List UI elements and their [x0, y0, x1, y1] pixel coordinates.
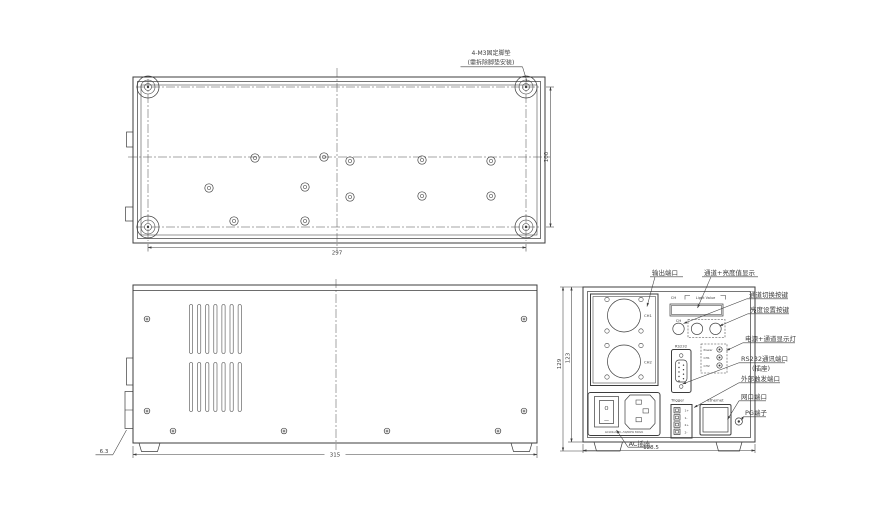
led-ch1-label: CH1	[704, 356, 710, 360]
led-power-label: Power	[704, 348, 714, 352]
centerlines	[128, 68, 550, 251]
dim-side-width: 315	[133, 446, 537, 459]
callout-power-channel-leds: 电源+通道显示灯	[727, 334, 797, 351]
engineering-drawing: 297 100 4-M3固定脚垫 (需拆除脚垫安装)	[0, 0, 888, 522]
side-view: 6.3 315	[96, 279, 538, 459]
callout-pg-terminal: PG端子	[742, 408, 768, 421]
db9-pins	[678, 362, 684, 381]
dim-6-3: 6.3	[100, 449, 109, 455]
switch-off-symbol: O	[605, 406, 609, 412]
dim-297: 297	[332, 251, 343, 257]
trigger-terminal-block: Trigger 1+ 1- 2+ 2-	[670, 398, 692, 439]
output-ch2-label: CH2	[644, 360, 653, 365]
status-leds	[717, 347, 722, 368]
svg-text:输出端口: 输出端口	[652, 268, 678, 277]
svg-text:RS232通讯端口: RS232通讯端口	[741, 354, 788, 363]
dim-100: 100	[544, 151, 550, 162]
display-value-label: Light Value	[696, 296, 715, 300]
brightness-down-knob	[710, 323, 721, 334]
output-ch1-label: CH1	[644, 313, 653, 318]
dim-123: 123	[566, 352, 572, 363]
svg-text:通道+亮度值显示: 通道+亮度值显示	[704, 268, 755, 277]
output-panel-screw-holes	[605, 297, 643, 379]
callout-channel-display: 通道+亮度值显示	[698, 268, 759, 308]
dim-tab: 6.3	[96, 430, 127, 455]
svg-text:AC插座: AC插座	[629, 439, 651, 448]
rear-panel-view: CH1 CH2 CH Light Value CH RS232	[557, 287, 755, 453]
power-switch: O —	[595, 397, 619, 428]
display-ch-label: CH	[671, 295, 677, 300]
pg-terminal-screw	[735, 418, 742, 425]
device-feet	[139, 443, 532, 452]
trigger-pin-2n: 2-	[685, 430, 688, 434]
side-screws	[144, 316, 527, 434]
display-window	[670, 304, 723, 316]
svg-text:电源+通道显示灯: 电源+通道显示灯	[745, 334, 796, 343]
dim-315: 315	[330, 453, 341, 459]
side-mounting-tabs	[126, 132, 134, 221]
rs232-label: RS232	[675, 344, 688, 349]
ethernet-port: Ethernet	[700, 398, 731, 436]
dim-rear-width: 128.5	[583, 444, 755, 453]
control-buttons: CH	[673, 318, 725, 338]
iec-inlet	[625, 395, 655, 429]
foot-pad-note-line2: (需拆除脚垫安装)	[468, 59, 515, 67]
top-view: 297 100 4-M3固定脚垫 (需拆除脚垫安装)	[126, 49, 555, 257]
dim-129: 129	[557, 358, 563, 369]
ac-rating-text: AC100-240V~50/60Hz 300VA	[605, 430, 643, 434]
drawing-canvas: 297 100 4-M3固定脚垫 (需拆除脚垫安装)	[0, 0, 888, 522]
side-left-tabs	[125, 358, 133, 429]
brightness-up-knob	[691, 323, 702, 334]
rs232-connector: RS232	[672, 344, 692, 393]
svg-text:外部触发端口: 外部触发端口	[741, 374, 780, 383]
side-view-outline	[133, 285, 537, 443]
svg-text:(插座): (插座)	[752, 364, 770, 373]
trigger-pin-1p: 1+	[685, 409, 690, 413]
svg-text:PG端子: PG端子	[745, 408, 767, 417]
output-port-ch2	[608, 345, 641, 378]
channel-display: CH Light Value	[670, 295, 726, 316]
svg-text:通道切换按键: 通道切换按键	[749, 290, 789, 299]
ethernet-label: Ethernet	[707, 398, 724, 403]
top-view-outline	[133, 77, 545, 243]
output-panel: CH1 CH2	[591, 294, 659, 386]
channel-switch-knob	[673, 323, 684, 334]
switch-on-symbol: —	[604, 418, 609, 424]
trigger-terminals	[674, 408, 680, 435]
vent-slots	[190, 305, 242, 412]
mounting-screws	[205, 153, 495, 225]
rear-feet	[594, 442, 742, 451]
output-port-ch1	[608, 299, 641, 332]
led-ch2-label: CH2	[704, 364, 710, 368]
dim-rear-height-body: 123	[566, 287, 584, 442]
ac-inlet-module: O — AC100-240V~50/60Hz 300VA	[588, 393, 660, 436]
svg-text:网口端口: 网口端口	[741, 392, 767, 401]
trigger-pin-2p: 2+	[685, 423, 690, 427]
trigger-label: Trigger	[670, 398, 685, 403]
foot-pad-note-line1: 4-M3固定脚垫	[472, 49, 511, 57]
trigger-pin-1n: 1-	[685, 416, 688, 420]
knob-ch-label: CH	[676, 318, 682, 323]
svg-text:亮度设置按键: 亮度设置按键	[750, 305, 790, 314]
